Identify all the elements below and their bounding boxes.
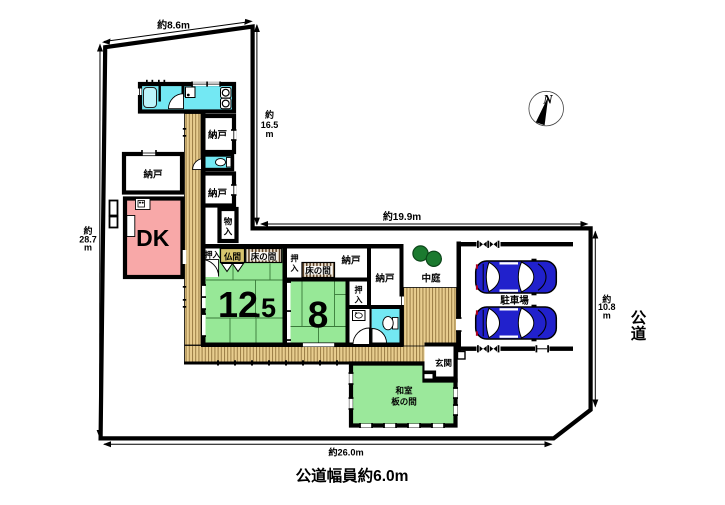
svg-text:床の間: 床の間 <box>305 266 331 276</box>
svg-text:押: 押 <box>291 253 299 263</box>
svg-text:入: 入 <box>290 264 299 273</box>
svg-text:納戸: 納戸 <box>375 273 395 285</box>
svg-text:押入: 押入 <box>205 250 221 260</box>
svg-text:約19.9m: 約19.9m <box>383 210 421 223</box>
svg-text:m: m <box>603 311 611 321</box>
svg-text:物: 物 <box>224 217 233 227</box>
svg-text:仏間: 仏間 <box>223 252 241 262</box>
svg-text:床の間: 床の間 <box>251 252 277 262</box>
svg-text:納戸: 納戸 <box>143 169 163 181</box>
svg-text:12: 12 <box>218 284 258 325</box>
svg-text:和室: 和室 <box>395 386 413 396</box>
svg-text:5: 5 <box>261 293 276 323</box>
svg-text:公道幅員約6.0m: 公道幅員約6.0m <box>296 466 409 485</box>
svg-text:玄関: 玄関 <box>435 358 452 368</box>
svg-text:押: 押 <box>355 285 363 295</box>
svg-text:公: 公 <box>631 309 647 327</box>
svg-text:納戸: 納戸 <box>208 129 228 141</box>
svg-text:約8.6m: 約8.6m <box>157 19 190 32</box>
svg-text:納戸: 納戸 <box>341 255 361 267</box>
svg-text:納戸: 納戸 <box>208 188 228 200</box>
svg-text:板の間: 板の間 <box>391 397 417 407</box>
svg-text:m: m <box>84 242 92 252</box>
svg-text:道: 道 <box>631 324 647 343</box>
svg-text:約26.0m: 約26.0m <box>328 447 363 458</box>
svg-text:m: m <box>265 129 273 139</box>
svg-text:約: 約 <box>265 109 274 120</box>
svg-text:中庭: 中庭 <box>421 273 441 285</box>
svg-text:駐車場: 駐車場 <box>500 295 529 307</box>
svg-text:入: 入 <box>354 296 363 305</box>
svg-text:入: 入 <box>223 227 233 237</box>
svg-text:8: 8 <box>308 295 329 336</box>
svg-text:DK: DK <box>136 225 170 251</box>
